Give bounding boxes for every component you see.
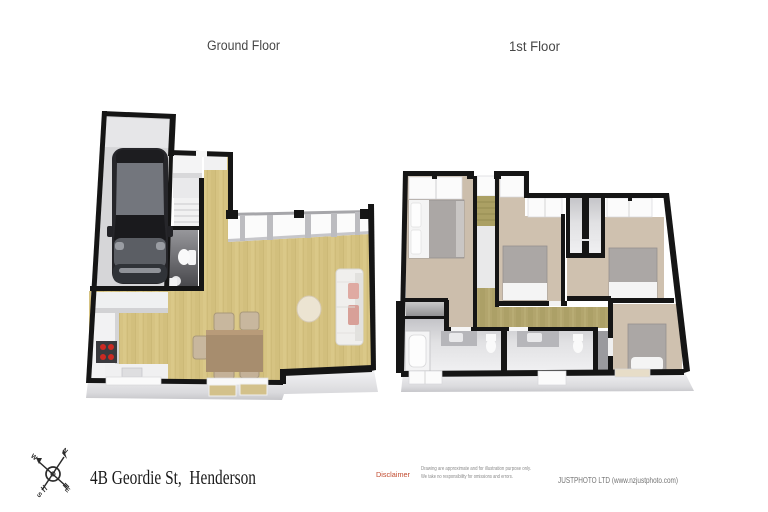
svg-text:Disclaimer: Disclaimer <box>376 470 410 479</box>
svg-text:Drawing are approximate and fo: Drawing are approximate and for illustra… <box>421 466 531 472</box>
svg-text:4B Geordie St, Henderson: 4B Geordie St, Henderson <box>90 468 256 489</box>
svg-text:Ground Floor: Ground Floor <box>207 38 280 53</box>
svg-text:We take no responsibility for: We take no responsibility for omissions … <box>421 474 513 480</box>
svg-text:JUSTPHOTO LTD (www.nzjustphoto: JUSTPHOTO LTD (www.nzjustphoto.com) <box>558 476 678 485</box>
svg-text:1st Floor: 1st Floor <box>509 39 560 54</box>
